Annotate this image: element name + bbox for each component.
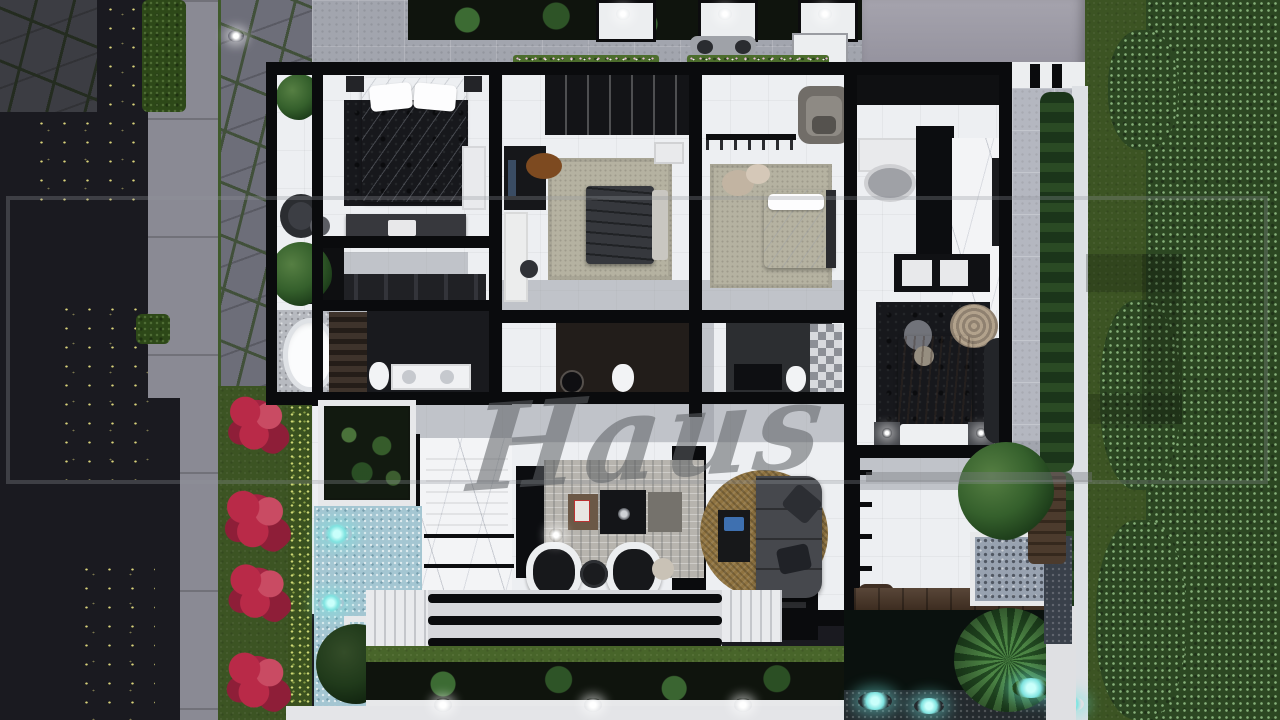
vanity-sink xyxy=(440,370,454,384)
slat-deck xyxy=(366,590,428,646)
floor-lamp xyxy=(549,528,563,542)
bedroom2-headboard xyxy=(652,190,668,260)
bedroom4-bed-foot xyxy=(900,424,970,446)
bridge-beam xyxy=(428,594,722,603)
red-flower-bush xyxy=(220,558,296,626)
washing-machine xyxy=(864,164,916,202)
utility-wall-band xyxy=(857,75,999,105)
hedge-mid-left xyxy=(136,314,170,344)
pool-light xyxy=(322,524,352,544)
path-light xyxy=(584,698,602,712)
bedside-lamp xyxy=(882,428,892,438)
vanity-sink xyxy=(402,370,416,384)
shrub-clump xyxy=(1108,30,1178,150)
round-rug-orange xyxy=(526,153,562,179)
wall xyxy=(502,310,857,323)
side-table-round xyxy=(652,558,674,580)
pool-light xyxy=(318,594,344,612)
bridge-beam xyxy=(428,616,722,625)
nightstand xyxy=(346,76,364,92)
watermark-glyph-bar xyxy=(1088,394,1182,424)
slat-deck xyxy=(722,590,782,642)
bench-cushion xyxy=(735,40,751,54)
path-light xyxy=(434,698,452,712)
wall xyxy=(312,62,1012,75)
wardrobe xyxy=(545,75,689,135)
canopy-downlight xyxy=(616,8,630,20)
bench-cushion xyxy=(697,40,713,54)
floorplan-render: Haus xyxy=(0,0,1280,720)
bedroom2-bed xyxy=(586,186,654,264)
bedside-shelf xyxy=(654,142,684,164)
coffee-table-round xyxy=(580,560,608,588)
watermark-script: Haus xyxy=(464,365,832,509)
bed-pillow xyxy=(369,82,413,112)
kitchen-island xyxy=(916,126,954,272)
shrub-clump xyxy=(1096,520,1186,720)
watermark-underline xyxy=(866,472,1092,482)
canopy-slab xyxy=(596,0,656,42)
wall-hook xyxy=(858,566,872,571)
red-flower-bush xyxy=(216,484,296,556)
stair-railing xyxy=(424,534,514,568)
wall xyxy=(489,62,502,405)
shower-slat-mat xyxy=(329,312,367,394)
path-light xyxy=(228,30,244,42)
wall xyxy=(266,62,277,404)
bed-pillow xyxy=(413,82,457,112)
path-light xyxy=(734,698,752,712)
kitchen-appliance xyxy=(902,260,932,286)
pond-light xyxy=(914,698,944,714)
wall xyxy=(312,300,502,311)
plant-row-right xyxy=(1040,92,1074,472)
palm-plant xyxy=(958,442,1054,540)
pond-light xyxy=(858,692,892,710)
armchair-cushion xyxy=(812,116,836,134)
desk-knob xyxy=(618,508,630,520)
canopy-downlight xyxy=(718,8,732,20)
wall-hook xyxy=(858,502,872,507)
nightstand xyxy=(464,76,482,92)
kitchen-appliance xyxy=(940,260,968,286)
bedroom3-bed-frame xyxy=(826,190,836,268)
floor-shadow xyxy=(502,280,690,310)
shelf-column xyxy=(462,146,486,210)
canopy-downlight xyxy=(818,8,832,20)
laptop xyxy=(388,220,416,236)
red-flower-bush xyxy=(218,646,296,716)
vanity-counter xyxy=(504,212,528,302)
bed-pillow xyxy=(768,194,824,210)
wall xyxy=(312,236,502,248)
pouf xyxy=(746,164,770,184)
desk-monitor xyxy=(508,160,516,196)
hedge-top-left xyxy=(142,0,186,112)
flagstone-corner xyxy=(0,0,97,112)
clothes-hangers xyxy=(706,140,796,150)
vanity-stool xyxy=(520,260,538,278)
toilet xyxy=(369,362,389,390)
pond-light xyxy=(1012,678,1050,698)
asphalt-sparkle-patch xyxy=(75,560,155,720)
wall-hook xyxy=(858,534,872,539)
courtyard-garden-plants xyxy=(326,408,408,498)
tablet-on-tray xyxy=(724,517,744,531)
